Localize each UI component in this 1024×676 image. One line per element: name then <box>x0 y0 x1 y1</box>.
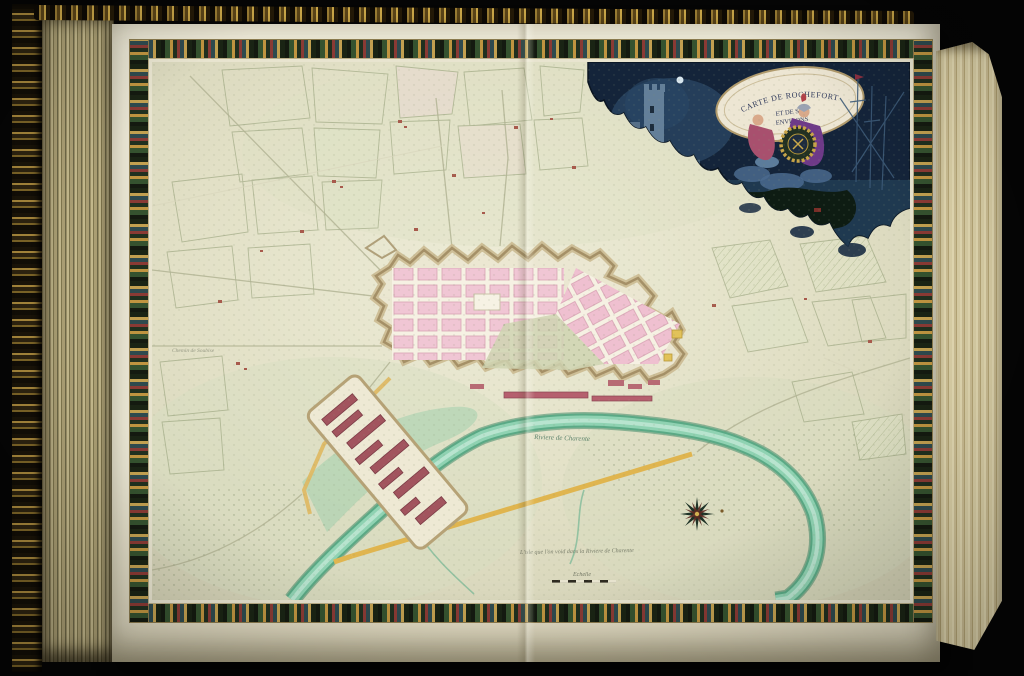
frame-left <box>130 40 148 622</box>
book-page-stack-left <box>42 12 114 662</box>
book-fore-edge-right <box>936 42 1002 656</box>
book-gilt-cover-edge <box>12 4 42 672</box>
frame-right <box>914 40 932 622</box>
page-center-fold <box>517 24 535 662</box>
atlas-page: Echelle Riviere de Charente L'isle que l… <box>112 24 940 662</box>
photograph-of-atlas: Echelle Riviere de Charente L'isle que l… <box>0 0 1024 676</box>
book-gilt-top-edge <box>34 5 914 26</box>
